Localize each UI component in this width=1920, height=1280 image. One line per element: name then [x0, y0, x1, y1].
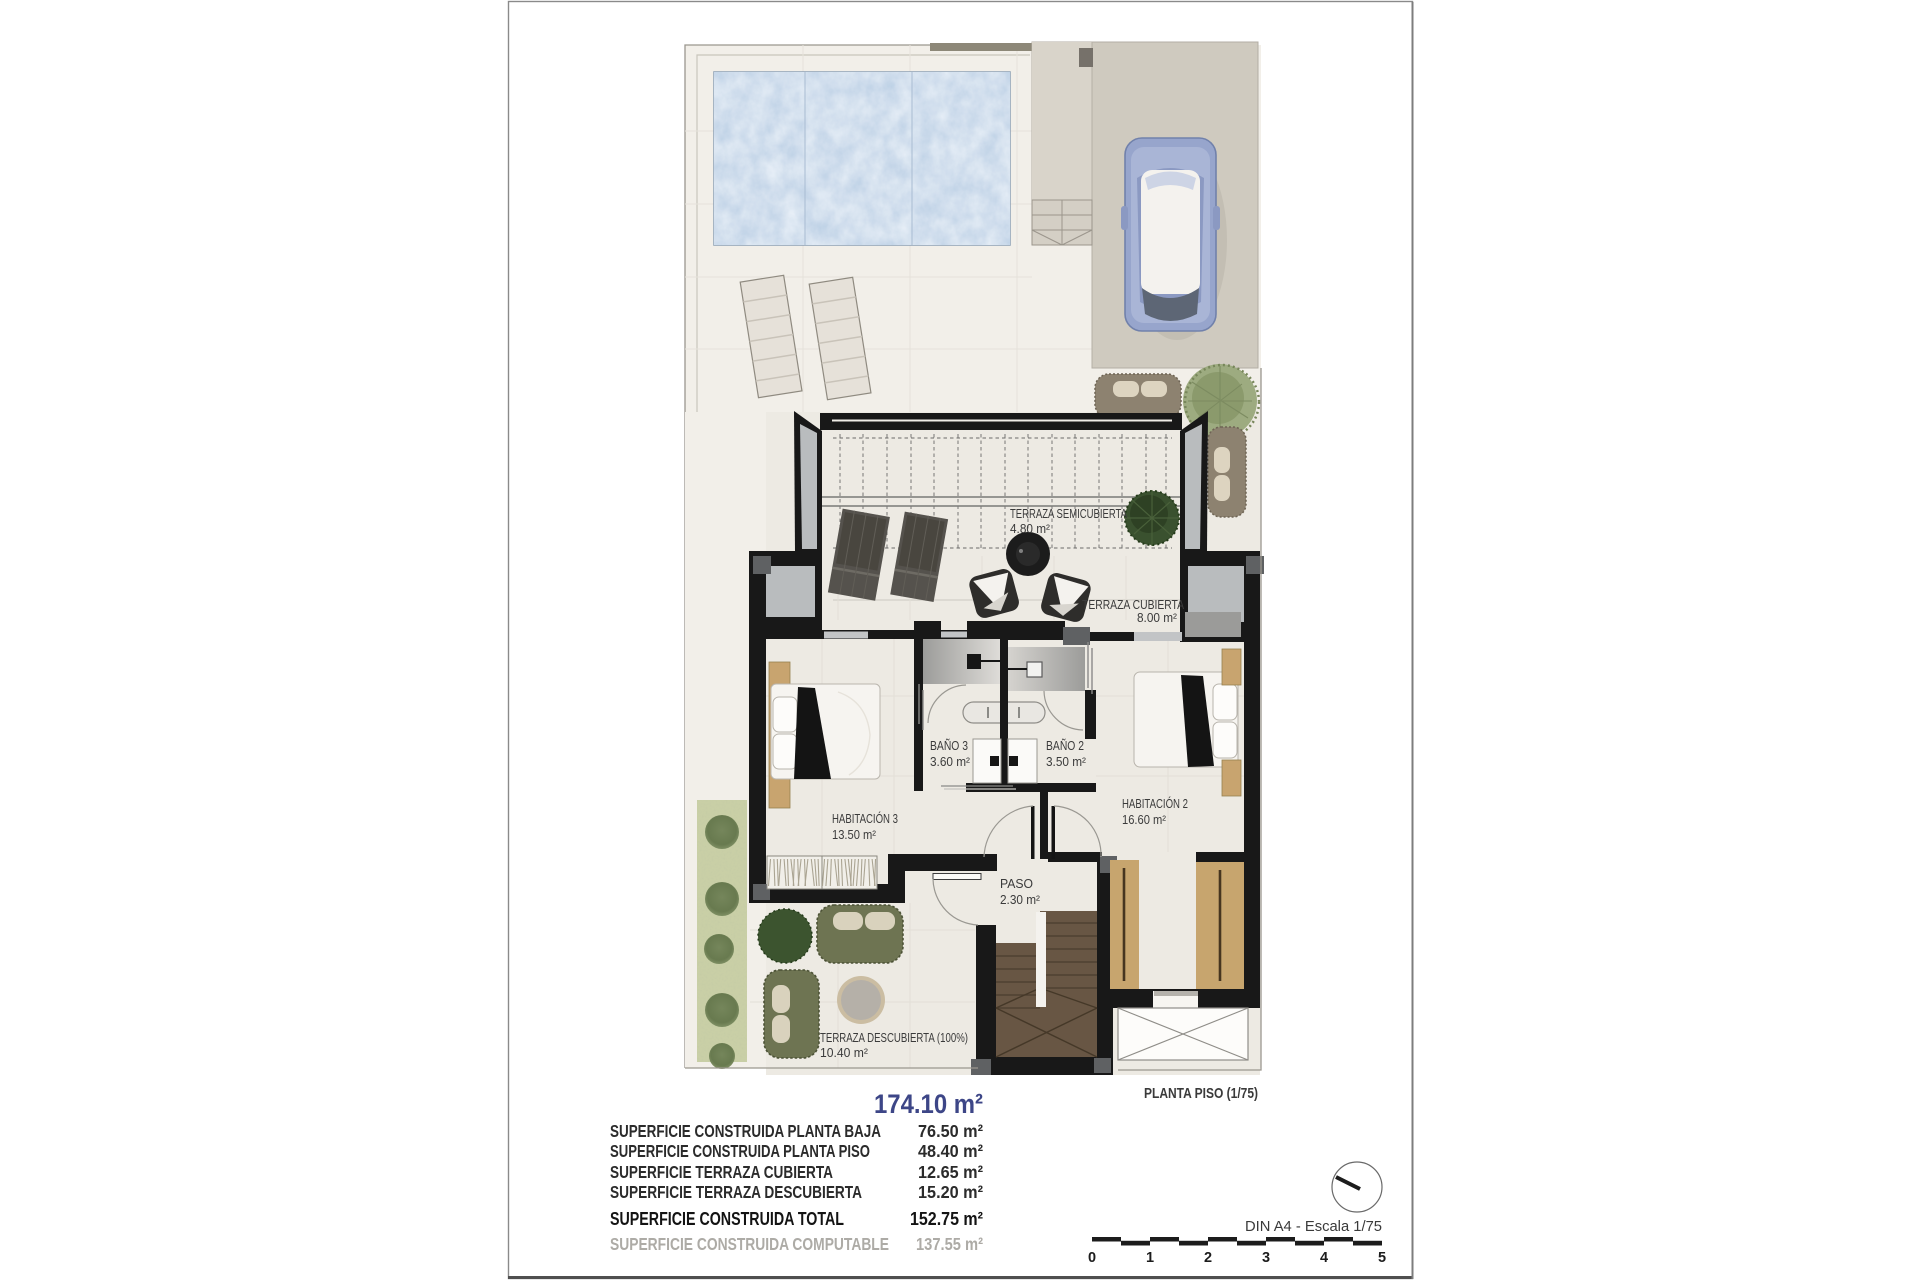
svg-text:DIN A4 - Escala 1/75: DIN A4 - Escala 1/75	[1245, 1218, 1382, 1235]
svg-text:TERRAZA CUBIERTA: TERRAZA CUBIERTA	[1082, 598, 1185, 612]
svg-text:SUPERFICIE CONSTRUIDA PLANTA B: SUPERFICIE CONSTRUIDA PLANTA BAJA	[610, 1121, 881, 1141]
svg-text:HABITACIÓN 2: HABITACIÓN 2	[1122, 796, 1188, 811]
svg-text:3.50 m²: 3.50 m²	[1046, 755, 1086, 769]
svg-text:0: 0	[1088, 1250, 1096, 1266]
svg-text:16.60 m²: 16.60 m²	[1122, 813, 1166, 827]
svg-text:TERRAZA DESCUBIERTA (100%): TERRAZA DESCUBIERTA (100%)	[820, 1031, 968, 1045]
svg-text:PASO: PASO	[1000, 877, 1033, 891]
svg-text:15.20 m²: 15.20 m²	[918, 1182, 983, 1202]
svg-text:BAÑO 2: BAÑO 2	[1046, 739, 1084, 753]
svg-text:3: 3	[1262, 1250, 1270, 1266]
svg-text:76.50 m²: 76.50 m²	[918, 1121, 983, 1141]
svg-text:12.65 m²: 12.65 m²	[918, 1162, 983, 1182]
svg-text:BAÑO 3: BAÑO 3	[930, 739, 968, 753]
svg-text:174.10 m²: 174.10 m²	[874, 1089, 983, 1119]
svg-text:SUPERFICIE TERRAZA CUBIERTA: SUPERFICIE TERRAZA CUBIERTA	[610, 1162, 833, 1182]
svg-text:SUPERFICIE CONSTRUIDA PLANTA P: SUPERFICIE CONSTRUIDA PLANTA PISO	[610, 1141, 870, 1161]
svg-text:TERRAZA SEMICUBIERTA: TERRAZA SEMICUBIERTA	[1010, 507, 1128, 521]
svg-text:137.55 m²: 137.55 m²	[916, 1234, 983, 1254]
svg-text:HABITACIÓN 3: HABITACIÓN 3	[832, 811, 898, 826]
svg-text:48.40 m²: 48.40 m²	[918, 1141, 983, 1161]
svg-text:152.75 m²: 152.75 m²	[910, 1208, 983, 1229]
svg-text:4: 4	[1320, 1250, 1328, 1266]
svg-text:2.30 m²: 2.30 m²	[1000, 893, 1040, 907]
svg-text:4.80 m²: 4.80 m²	[1010, 522, 1050, 536]
svg-text:5: 5	[1378, 1250, 1386, 1266]
svg-text:SUPERFICIE TERRAZA DESCUBIERTA: SUPERFICIE TERRAZA DESCUBIERTA	[610, 1182, 862, 1202]
svg-text:PLANTA PISO (1/75): PLANTA PISO (1/75)	[1144, 1085, 1258, 1102]
svg-text:2: 2	[1204, 1250, 1212, 1266]
svg-text:13.50 m²: 13.50 m²	[832, 828, 876, 842]
svg-text:SUPERFICIE CONSTRUIDA COMPUTAB: SUPERFICIE CONSTRUIDA COMPUTABLE	[610, 1234, 889, 1254]
svg-text:8.00 m²: 8.00 m²	[1137, 611, 1177, 625]
svg-text:SUPERFICIE CONSTRUIDA TOTAL: SUPERFICIE CONSTRUIDA TOTAL	[610, 1208, 844, 1229]
svg-text:3.60 m²: 3.60 m²	[930, 755, 970, 769]
svg-text:10.40 m²: 10.40 m²	[820, 1046, 868, 1060]
svg-text:1: 1	[1146, 1250, 1154, 1266]
